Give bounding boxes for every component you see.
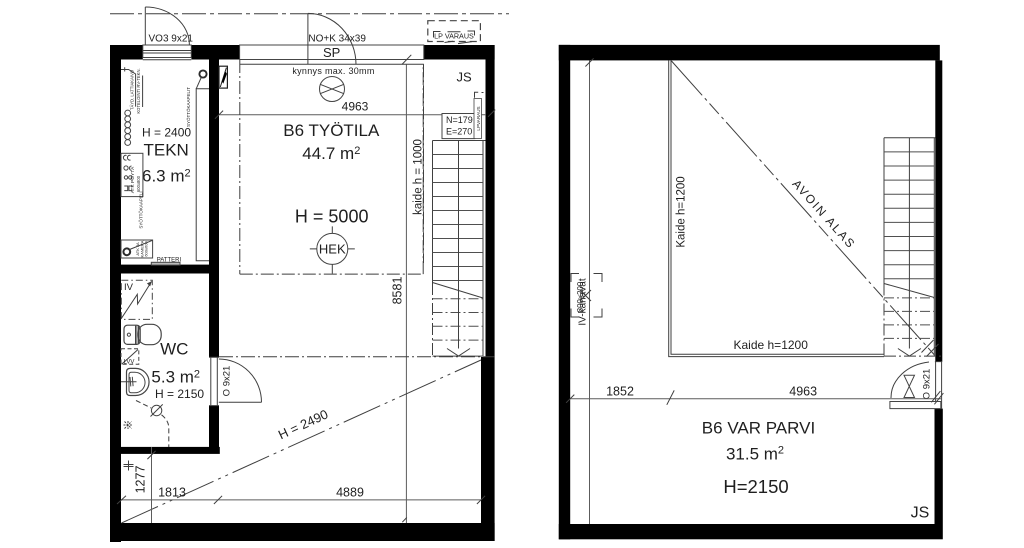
svg-text:E=270: E=270 — [446, 126, 472, 136]
svg-text:8581: 8581 — [391, 277, 405, 305]
svg-text:44.7 m2: 44.7 m2 — [302, 144, 360, 163]
svg-text:LVV: LVV — [124, 359, 135, 365]
svg-text:VO3 9x21: VO3 9x21 — [149, 33, 194, 44]
svg-text:HEK: HEK — [319, 242, 346, 257]
svg-text:H = 5000: H = 5000 — [295, 206, 369, 226]
svg-text:JS: JS — [457, 69, 473, 84]
svg-text:NO+K 34x39: NO+K 34x39 — [308, 33, 366, 44]
svg-text:4963: 4963 — [789, 385, 817, 399]
svg-text:SP: SP — [323, 45, 340, 60]
svg-text:O 9x21: O 9x21 — [222, 366, 233, 397]
svg-text:TÄYD. LATTIAKAIVO: TÄYD. LATTIAKAIVO — [129, 69, 134, 110]
svg-text:H = 2400: H = 2400 — [142, 126, 191, 140]
svg-text:4963: 4963 — [342, 100, 369, 114]
svg-text:4889: 4889 — [336, 485, 364, 499]
svg-text:1813: 1813 — [158, 485, 186, 499]
svg-text:N=179: N=179 — [446, 115, 473, 125]
svg-text:5.3 m2: 5.3 m2 — [151, 367, 200, 386]
svg-text:H=2150: H=2150 — [723, 476, 788, 497]
svg-text:KOTELOINTI RV-TEKN.: KOTELOINTI RV-TEKN. — [136, 68, 141, 113]
svg-text:kynnys max. 30mm: kynnys max. 30mm — [292, 66, 374, 76]
svg-text:600x600: 600x600 — [144, 241, 149, 257]
svg-text:LP VARAUS: LP VARAUS — [434, 32, 474, 41]
svg-text:JS: JS — [911, 505, 930, 522]
svg-text:kaide h = 1000: kaide h = 1000 — [413, 139, 425, 215]
svg-text:Kaide h=1200: Kaide h=1200 — [733, 338, 808, 352]
svg-text:6.3 m2: 6.3 m2 — [142, 167, 191, 186]
svg-text:B6 VAR PARVI: B6 VAR PARVI — [702, 419, 815, 438]
svg-text:LPVARAUS: LPVARAUS — [476, 106, 481, 130]
svg-text:31.5 m2: 31.5 m2 — [726, 444, 784, 463]
svg-text:IV: IV — [124, 282, 134, 293]
svg-text:1277: 1277 — [134, 466, 148, 494]
svg-text:O 9x21: O 9x21 — [922, 369, 933, 400]
svg-text:SYÖTTÖKAAPELI: SYÖTTÖKAAPELI — [138, 191, 144, 228]
svg-text:SYÖTTÖKAAPELIT: SYÖTTÖKAAPELIT — [185, 87, 191, 127]
svg-text:B6 TYÖTILA: B6 TYÖTILA — [283, 121, 380, 140]
svg-text:H = 2150: H = 2150 — [155, 387, 204, 401]
svg-text:WC: WC — [160, 340, 188, 359]
svg-text:1852: 1852 — [606, 385, 634, 399]
svg-text:TEKN: TEKN — [144, 140, 189, 159]
svg-text:Kaide h=1200: Kaide h=1200 — [676, 176, 688, 247]
svg-text:600x800: 600x800 — [136, 175, 141, 192]
